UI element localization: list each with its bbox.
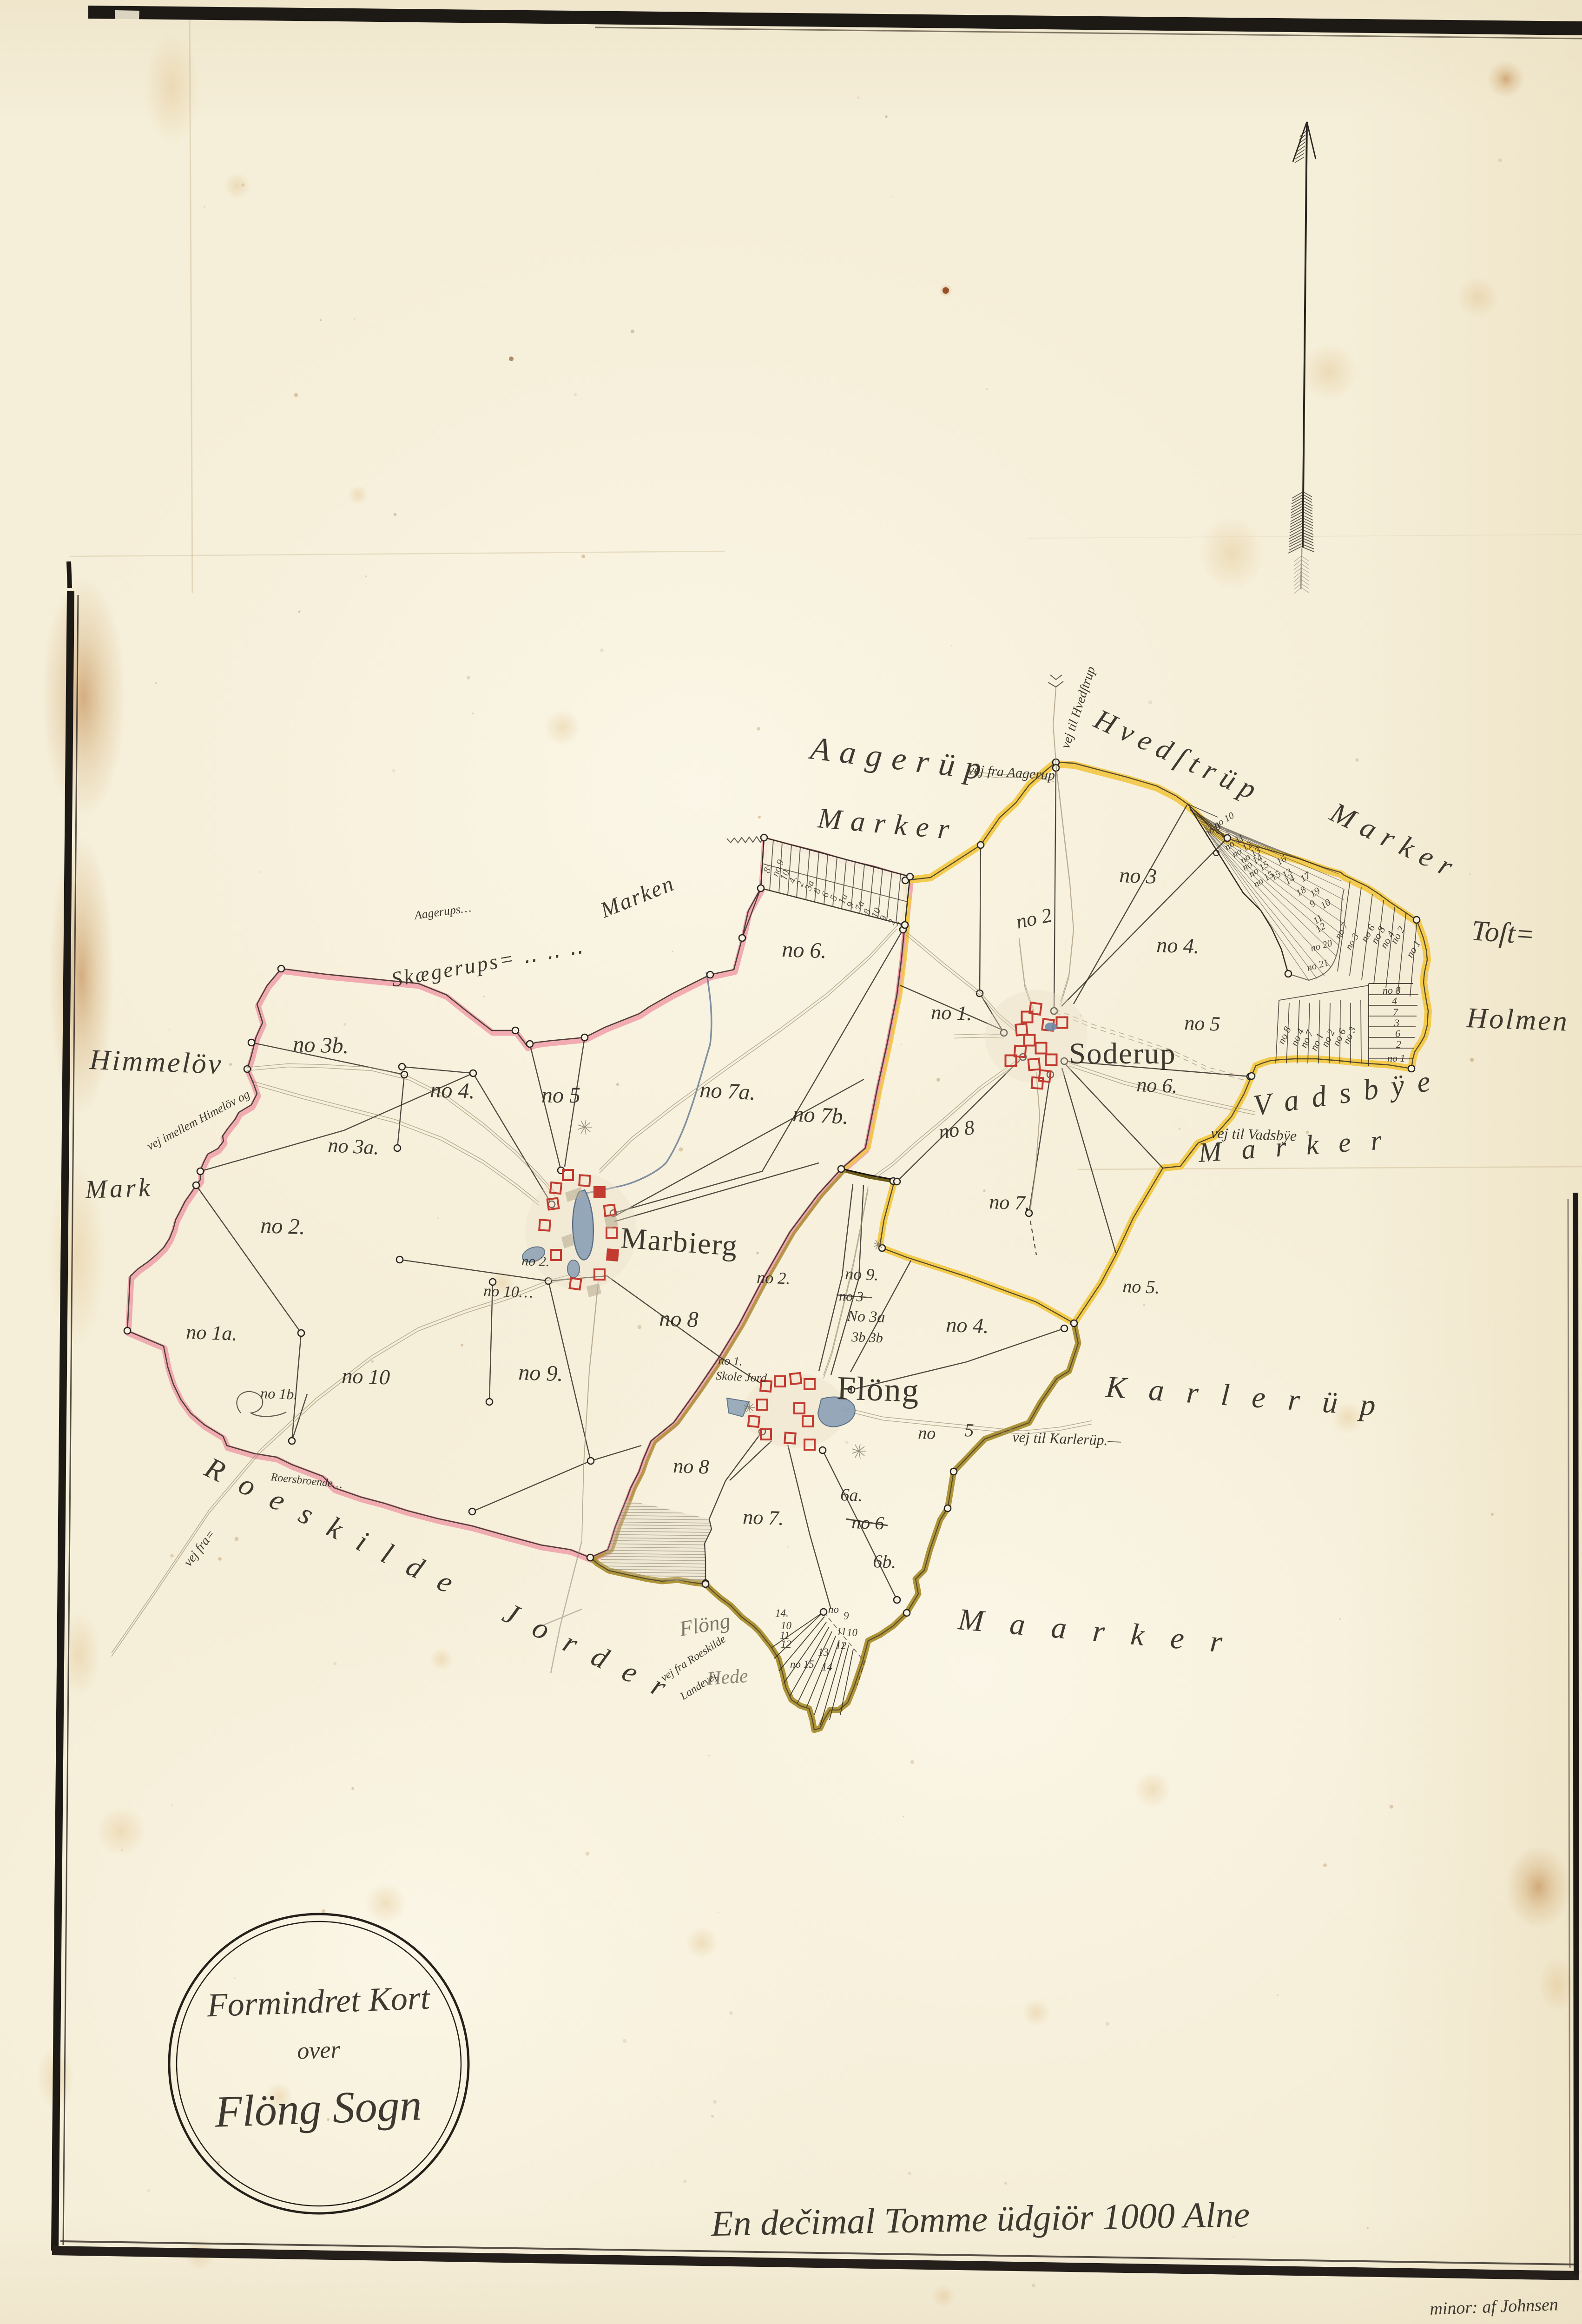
svg-text:no 5: no 5 — [1184, 1011, 1221, 1036]
svg-text:no 5: no 5 — [541, 1083, 580, 1108]
svg-text:no 8: no 8 — [1383, 984, 1401, 996]
svg-text:9: 9 — [844, 1610, 849, 1622]
svg-text:no 2.: no 2. — [757, 1268, 791, 1287]
svg-text:no 1.: no 1. — [718, 1353, 743, 1368]
svg-text:no 6.: no 6. — [782, 937, 827, 963]
svg-text:6: 6 — [1395, 1028, 1400, 1039]
svg-text:no 5.: no 5. — [1122, 1275, 1160, 1298]
svg-text:no 2.: no 2. — [260, 1213, 306, 1239]
svg-text:10: 10 — [847, 1627, 858, 1638]
svg-text:no 7.: no 7. — [989, 1190, 1031, 1215]
svg-text:no 2.: no 2. — [521, 1253, 550, 1269]
svg-text:7: 7 — [1393, 1006, 1398, 1018]
svg-text:No 3a: No 3a — [846, 1307, 885, 1326]
svg-text:Flöng: Flöng — [836, 1369, 920, 1409]
svg-text:Hede: Hede — [705, 1665, 749, 1690]
svg-text:Holmen: Holmen — [1466, 1002, 1570, 1037]
svg-text:Toſt=: Toſt= — [1470, 915, 1536, 951]
svg-text:Himmelöv: Himmelöv — [89, 1044, 224, 1080]
svg-text:no 4.: no 4. — [430, 1077, 475, 1103]
svg-text:over: over — [297, 2036, 341, 2064]
svg-text:no 3b.: no 3b. — [293, 1032, 349, 1058]
svg-text:Flöng Sogn: Flöng Sogn — [213, 2080, 422, 2137]
svg-text:no 7b.: no 7b. — [792, 1102, 849, 1129]
svg-text:no 6.: no 6. — [1136, 1073, 1178, 1097]
svg-text:Soderup: Soderup — [1069, 1037, 1176, 1070]
svg-text:no 10…: no 10… — [483, 1282, 534, 1301]
svg-text:no 1: no 1 — [1387, 1052, 1405, 1064]
svg-text:no 7.: no 7. — [743, 1505, 784, 1530]
svg-text:Mark: Mark — [84, 1173, 153, 1204]
svg-text:14.: 14. — [775, 1607, 789, 1619]
svg-text:6a.: 6a. — [840, 1485, 863, 1505]
svg-text:11: 11 — [837, 1626, 846, 1637]
svg-text:no 1a.: no 1a. — [186, 1320, 238, 1345]
svg-text:no 9.: no 9. — [845, 1264, 879, 1284]
svg-text:no 9.: no 9. — [518, 1360, 564, 1386]
svg-text:Formindret Kort: Formindret Kort — [206, 1979, 431, 2024]
svg-text:no 4.: no 4. — [1156, 933, 1200, 958]
svg-text:no 15: no 15 — [790, 1658, 814, 1670]
svg-text:14: 14 — [822, 1661, 832, 1673]
svg-text:2: 2 — [1396, 1038, 1401, 1050]
svg-text:no 1.: no 1. — [931, 1001, 973, 1025]
svg-text:no 10: no 10 — [342, 1364, 390, 1389]
svg-text:13: 13 — [818, 1646, 829, 1658]
svg-text:4: 4 — [1392, 995, 1397, 1007]
svg-text:3b 3b: 3b 3b — [851, 1329, 883, 1346]
svg-text:vej til Vadsbÿe: vej til Vadsbÿe — [1211, 1124, 1297, 1144]
svg-text:no 3: no 3 — [1119, 863, 1157, 888]
svg-text:no 7a.: no 7a. — [699, 1077, 756, 1105]
svg-text:no 8: no 8 — [659, 1306, 699, 1332]
svg-text:no 4.: no 4. — [946, 1313, 989, 1338]
svg-text:no 1b.: no 1b. — [260, 1385, 298, 1403]
svg-text:12: 12 — [836, 1640, 846, 1651]
svg-text:5: 5 — [964, 1419, 975, 1441]
svg-text:12: 12 — [781, 1638, 791, 1650]
svg-text:3: 3 — [1394, 1017, 1399, 1029]
svg-text:no: no — [918, 1423, 936, 1443]
svg-text:no 8: no 8 — [673, 1454, 710, 1479]
svg-text:Skole Jord: Skole Jord — [716, 1369, 768, 1385]
svg-text:6b.: 6b. — [873, 1551, 897, 1572]
svg-text:no 3a.: no 3a. — [327, 1134, 379, 1159]
